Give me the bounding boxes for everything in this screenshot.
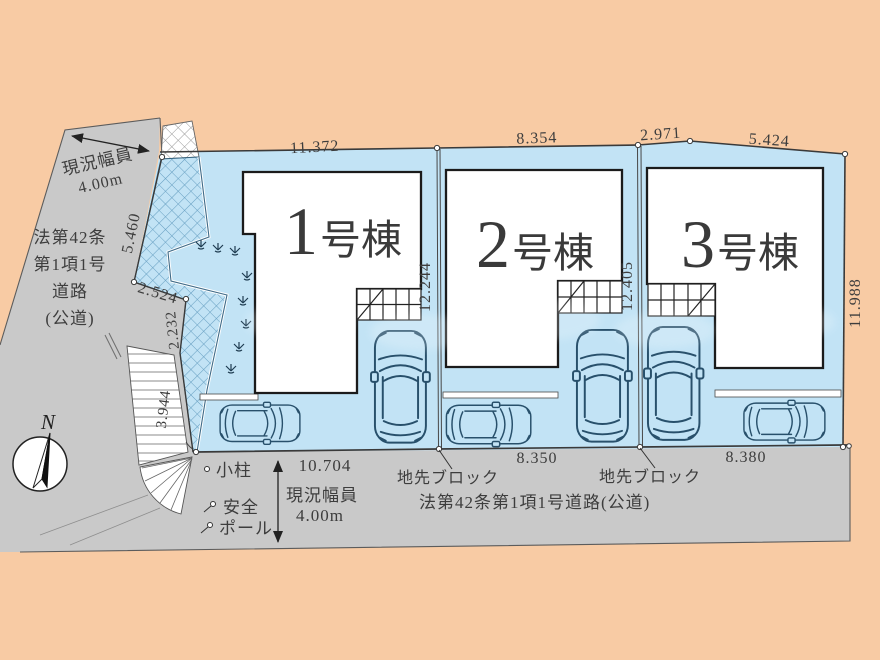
dim-bottom-3: 8.380 bbox=[726, 449, 767, 466]
edge-block-right-label: 地先ブロック bbox=[599, 467, 701, 486]
site-plan-drawing: 1号棟 2号棟 3号棟 11.372 8.354 2.971 5.424 12.… bbox=[0, 0, 880, 660]
dim-top-2: 8.354 bbox=[516, 129, 558, 147]
dim-top-1: 11.372 bbox=[290, 138, 340, 158]
car-lot1-horizontal bbox=[220, 402, 300, 444]
dim-bottom-2: 8.350 bbox=[517, 450, 558, 467]
site-plan: 1号棟 2号棟 3号棟 11.372 8.354 2.971 5.424 12.… bbox=[0, 0, 880, 660]
car-lot3-horizontal bbox=[744, 400, 825, 443]
safety-pole-label-1: 安全 bbox=[223, 498, 259, 517]
safety-pole-label-2: ポール bbox=[219, 519, 273, 538]
compass-n-label: N bbox=[40, 410, 56, 434]
left-road-name-line4: (公道) bbox=[45, 309, 94, 328]
dim-side-2: 12.405 bbox=[619, 261, 636, 311]
dim-bottom-1: 10.704 bbox=[299, 456, 352, 475]
car-lot2-vertical bbox=[573, 330, 632, 442]
crosshatch-band-white bbox=[161, 121, 199, 159]
car-lot2-horizontal bbox=[446, 402, 530, 446]
bottom-road-width-label-2: 4.00m bbox=[296, 506, 344, 525]
dim-side-3: 11.988 bbox=[847, 278, 864, 327]
edge-block-left-label: 地先ブロック bbox=[397, 468, 499, 487]
bottom-road-name: 法第42条第1項1号道路(公道) bbox=[419, 493, 650, 512]
left-road-name-line2: 第1項1号 bbox=[34, 255, 107, 274]
dim-top-4: 5.424 bbox=[748, 131, 790, 151]
left-road-name-line1: 法第42条 bbox=[34, 228, 107, 247]
left-road-name-line3: 道路 bbox=[52, 282, 88, 301]
balcony-grid-3 bbox=[648, 284, 715, 316]
dim-top-3: 2.971 bbox=[640, 125, 682, 145]
dim-side-1: 12.244 bbox=[417, 262, 434, 312]
bottom-road-width-label-1: 現況幅員 bbox=[286, 486, 358, 505]
small-pillar-label: 小柱 bbox=[216, 461, 252, 480]
